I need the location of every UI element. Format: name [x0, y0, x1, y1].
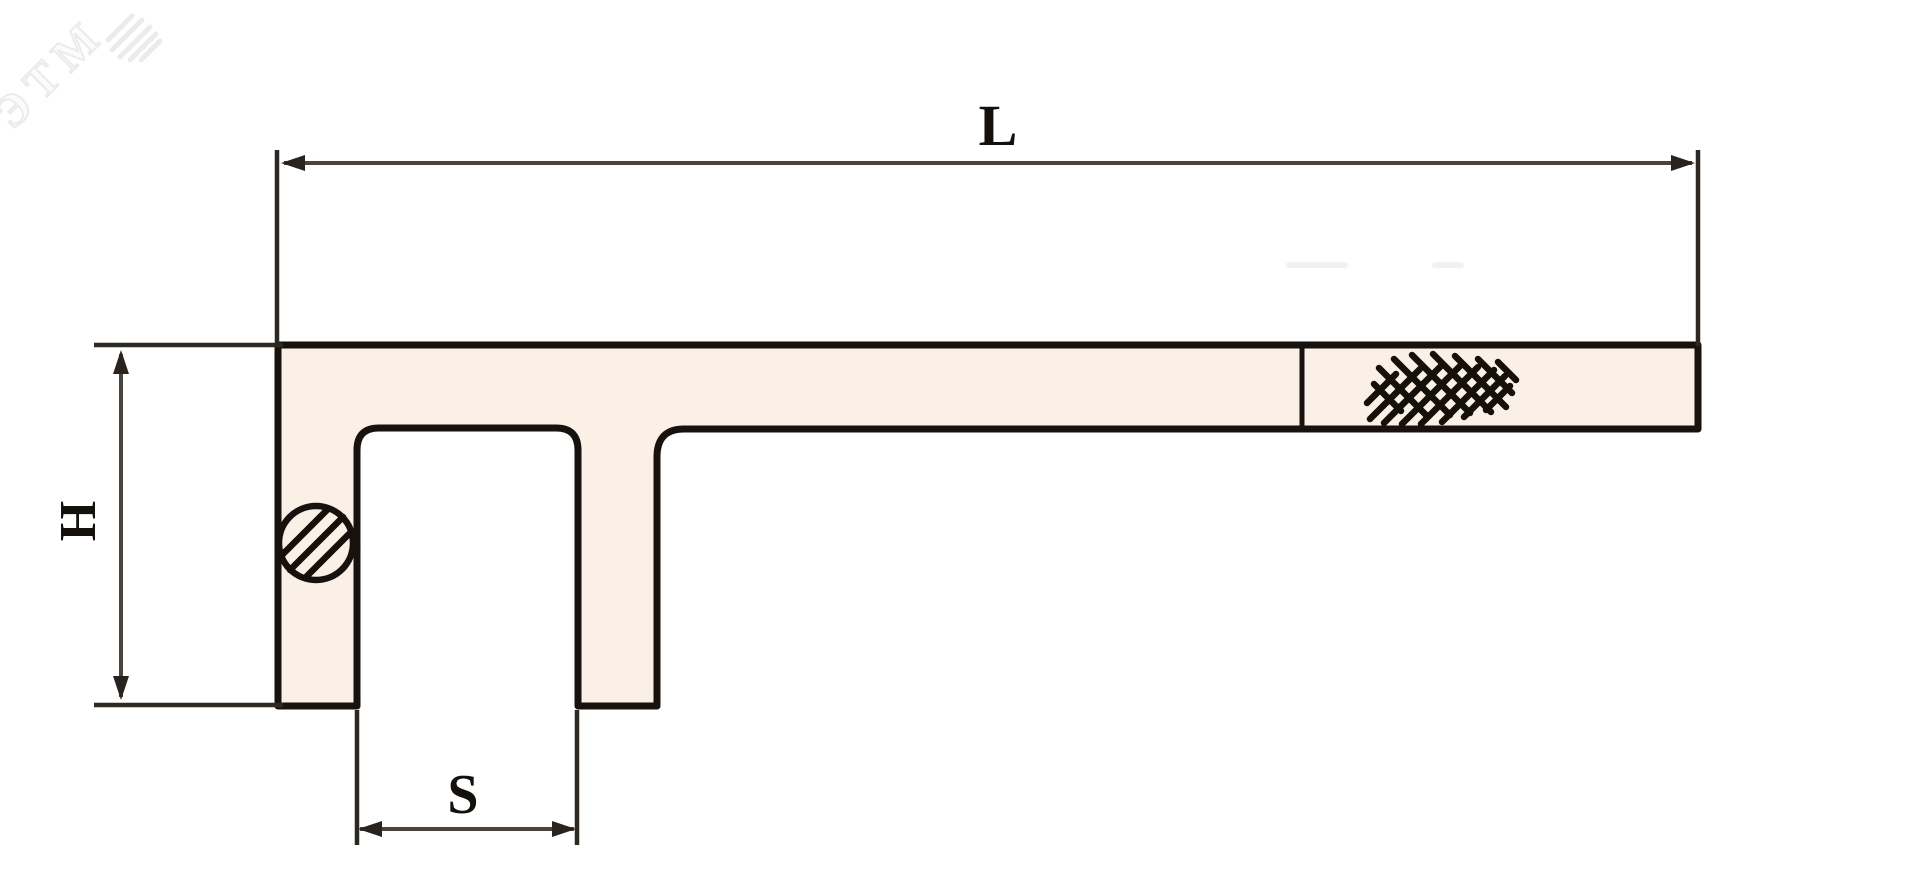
label-S: S [447, 767, 478, 823]
faint-smudge [1432, 262, 1464, 268]
faint-smudge [1286, 262, 1348, 268]
drawing-geometry [0, 0, 1920, 875]
arrowhead-L-right [1671, 155, 1695, 171]
arrowhead-S-right [552, 821, 576, 837]
arrowhead-H-top [113, 350, 129, 374]
technical-drawing-canvas: ЭТМ [0, 0, 1920, 875]
dimension-H [94, 345, 283, 705]
arrowhead-S-left [358, 821, 382, 837]
dimension-L [277, 150, 1698, 346]
label-H: H [53, 501, 105, 541]
label-L: L [979, 97, 1018, 155]
arrowhead-H-bottom [113, 676, 129, 700]
arrowhead-L-left [281, 155, 305, 171]
pin-circle-hatched [279, 506, 353, 580]
